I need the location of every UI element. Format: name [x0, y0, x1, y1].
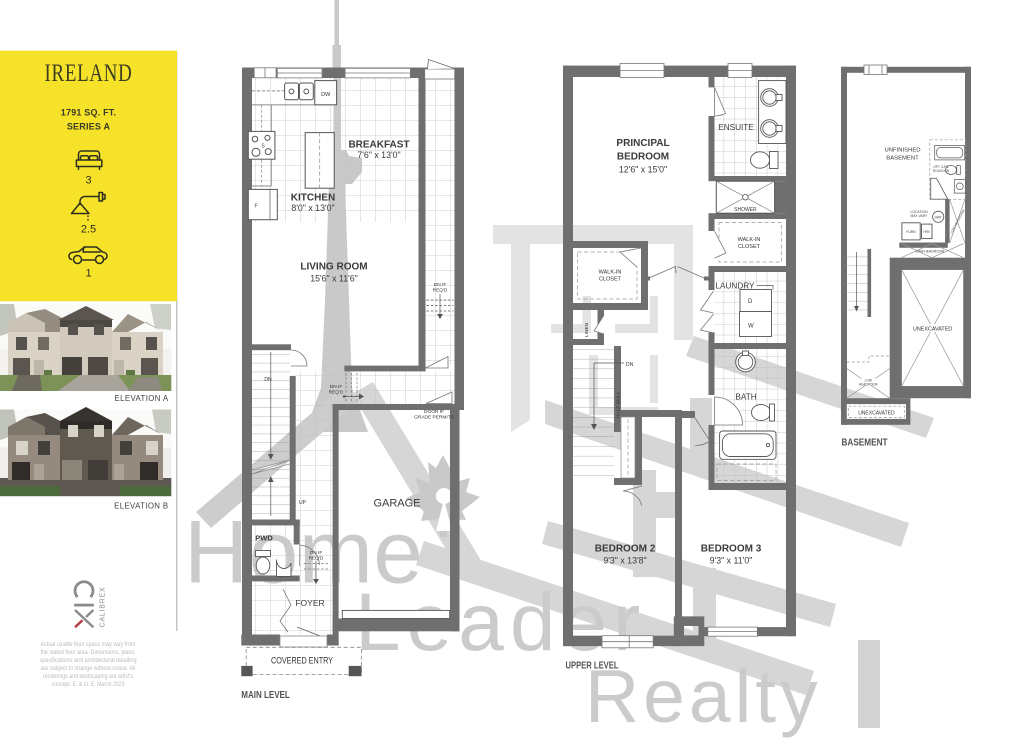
- svg-text:DN: DN: [264, 377, 272, 383]
- svg-text:DW: DW: [321, 92, 331, 98]
- svg-text:concept. E. & O. E. March 2023: concept. E. & O. E. March 2023: [52, 681, 125, 688]
- svg-text:1: 1: [85, 268, 91, 280]
- svg-text:BEDROOM 3: BEDROOM 3: [701, 544, 762, 555]
- svg-text:WALK-IN: WALK-IN: [599, 270, 622, 276]
- svg-text:FURN: FURN: [906, 230, 916, 234]
- svg-text:specifications and architectur: specifications and architectural detaili…: [40, 657, 137, 664]
- svg-text:GRADE PERMITS: GRADE PERMITS: [414, 415, 454, 421]
- svg-text:3: 3: [85, 175, 91, 187]
- svg-text:CLOSET: CLOSET: [738, 244, 761, 250]
- svg-text:CALIBREX: CALIBREX: [100, 586, 107, 627]
- svg-text:7'6" x 13'0": 7'6" x 13'0": [357, 150, 400, 160]
- svg-text:BATH: BATH: [735, 393, 756, 402]
- svg-text:IRELAND: IRELAND: [45, 58, 133, 87]
- svg-text:DN: DN: [626, 362, 634, 368]
- svg-text:HALF WALL: HALF WALL: [616, 391, 622, 418]
- svg-text:DN IF: DN IF: [310, 550, 323, 556]
- svg-text:LOW HEADROOM: LOW HEADROOM: [916, 250, 945, 254]
- svg-text:BEDROOM 2: BEDROOM 2: [595, 544, 656, 555]
- svg-text:9'3" x 13'8": 9'3" x 13'8": [603, 556, 646, 566]
- svg-text:are subject to change without: are subject to change without notice. Al…: [41, 665, 136, 672]
- svg-text:15'6" x 11'6": 15'6" x 11'6": [310, 274, 358, 284]
- svg-text:MAIN LEVEL: MAIN LEVEL: [241, 690, 289, 701]
- svg-text:Realty: Realty: [585, 654, 822, 738]
- svg-text:DOOR IF: DOOR IF: [424, 409, 444, 415]
- svg-text:12'6" x 15'0": 12'6" x 15'0": [619, 165, 667, 175]
- svg-text:D: D: [748, 299, 753, 305]
- svg-text:8'0" x 13'0": 8'0" x 13'0": [291, 203, 334, 213]
- svg-text:BEDROOM: BEDROOM: [617, 152, 669, 163]
- svg-text:UP: UP: [299, 500, 307, 506]
- svg-text:Actual usable floor space may: Actual usable floor space may vary from: [41, 641, 136, 648]
- svg-text:CLOSET: CLOSET: [599, 277, 622, 283]
- svg-text:DN IF: DN IF: [330, 384, 343, 390]
- svg-text:1791 SQ. FT.: 1791 SQ. FT.: [61, 108, 116, 118]
- svg-text:UNEXCAVATED: UNEXCAVATED: [913, 327, 952, 333]
- svg-text:SHOWER: SHOWER: [734, 207, 757, 213]
- svg-text:9'3" x 11'0": 9'3" x 11'0": [710, 556, 753, 566]
- svg-text:W: W: [748, 324, 754, 330]
- svg-text:COVERED ENTRY: COVERED ENTRY: [271, 656, 333, 666]
- svg-text:UNFINISHED: UNFINISHED: [885, 148, 921, 154]
- svg-text:GARAGE: GARAGE: [373, 498, 420, 510]
- svg-text:BASEMENT: BASEMENT: [842, 438, 888, 449]
- svg-text:REQ'D: REQ'D: [329, 390, 344, 396]
- svg-text:KITCHEN: KITCHEN: [291, 193, 335, 204]
- svg-text:ELEVATION A: ELEVATION A: [115, 394, 169, 403]
- svg-text:2.5: 2.5: [81, 224, 96, 236]
- svg-text:PWD: PWD: [255, 534, 273, 543]
- svg-text:REQ'D: REQ'D: [309, 556, 324, 562]
- svg-text:FOYER: FOYER: [295, 598, 324, 608]
- svg-text:HRV: HRV: [923, 230, 931, 234]
- svg-text:UPPER LEVEL: UPPER LEVEL: [566, 661, 619, 672]
- svg-text:ELEVATION B: ELEVATION B: [114, 502, 168, 511]
- svg-text:WALK-IN: WALK-IN: [738, 237, 761, 243]
- svg-text:ROUGH-IN: ROUGH-IN: [933, 169, 950, 173]
- svg-text:renderings and landscaping are: renderings and landscaping are artist's: [43, 673, 133, 680]
- svg-text:UNEXCAVATED: UNEXCAVATED: [858, 411, 895, 417]
- svg-text:BREAKFAST: BREAKFAST: [348, 140, 409, 151]
- svg-text:LOW HEADROOM: LOW HEADROOM: [950, 208, 966, 234]
- svg-text:HWT: HWT: [935, 215, 942, 219]
- svg-text:the stated floor area. Dimensi: the stated floor area. Dimensions, plans…: [41, 649, 136, 656]
- svg-text:SERIES A: SERIES A: [67, 122, 111, 132]
- svg-text:HEADROOM: HEADROOM: [859, 382, 878, 386]
- svg-text:BASEMENT: BASEMENT: [886, 156, 919, 162]
- svg-text:PRINCIPAL: PRINCIPAL: [616, 138, 669, 149]
- svg-text:MAY VARY: MAY VARY: [911, 214, 929, 218]
- svg-text:LIVING ROOM: LIVING ROOM: [300, 262, 367, 273]
- svg-text:ENSUITE: ENSUITE: [718, 123, 754, 132]
- svg-text:DN IF: DN IF: [434, 282, 447, 288]
- svg-text:LINEN: LINEN: [584, 322, 590, 337]
- svg-text:REQ'D: REQ'D: [433, 288, 448, 294]
- svg-text:F: F: [254, 204, 257, 210]
